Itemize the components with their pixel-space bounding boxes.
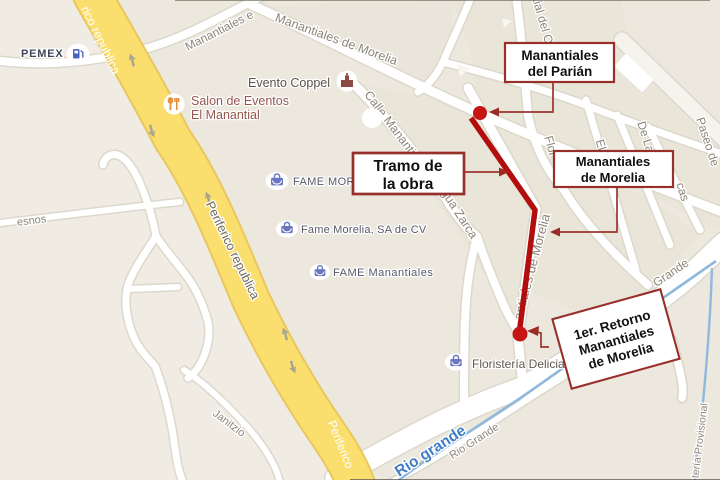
svg-text:Manantiales: Manantiales: [576, 154, 650, 169]
svg-text:de Morelia: de Morelia: [581, 170, 646, 185]
svg-text:Evento Coppel: Evento Coppel: [248, 76, 330, 90]
svg-text:Salon de Eventos: Salon de Eventos: [191, 94, 289, 108]
svg-text:del Parián: del Parián: [528, 64, 593, 79]
svg-text:FAME Manantiales: FAME Manantiales: [333, 267, 433, 279]
svg-text:Fame Morelia, SA de CV: Fame Morelia, SA de CV: [301, 224, 427, 236]
svg-text:Manantiales: Manantiales: [521, 48, 598, 63]
svg-text:El Manantial: El Manantial: [191, 108, 260, 122]
svg-text:la obra: la obra: [383, 176, 434, 193]
svg-text:Tramo de: Tramo de: [374, 158, 443, 175]
svg-text:PEMEX: PEMEX: [21, 48, 64, 60]
